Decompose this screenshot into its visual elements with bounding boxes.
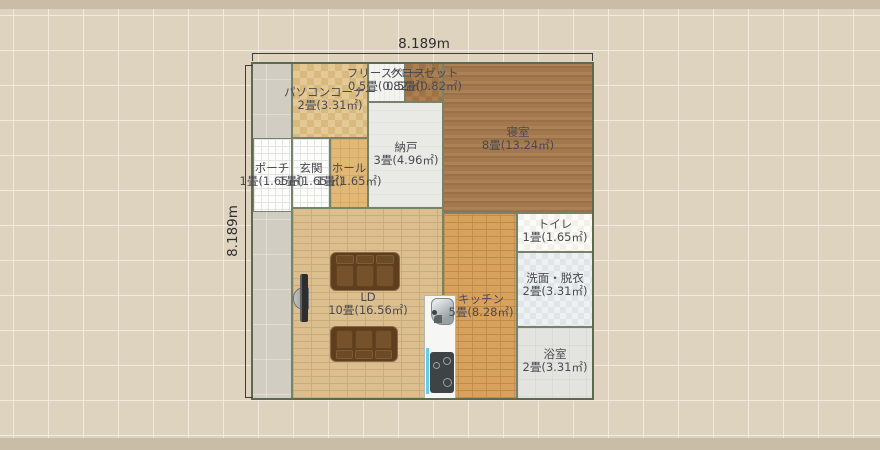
sofa-seats bbox=[336, 265, 394, 287]
stove-icon[interactable] bbox=[430, 352, 454, 393]
room-size: 8畳(13.24㎡) bbox=[482, 139, 554, 152]
sofa-icon[interactable] bbox=[330, 252, 400, 291]
room-label-storage: 納戸3畳(4.96㎡) bbox=[374, 141, 439, 167]
room-label-kitchen: キッチン5畳(8.28㎡) bbox=[449, 293, 514, 319]
dimension-label-top: 8.189m bbox=[398, 36, 450, 52]
room-side-strip[interactable] bbox=[252, 63, 292, 399]
sofa-back-cushion bbox=[376, 255, 394, 264]
floorplan-canvas[interactable]: パソコンコーナー2畳(3.31㎡) フリースペース0.5畳(0.82㎡) クロー… bbox=[0, 0, 880, 450]
room-label-bathroom: 浴室2畳(3.31㎡) bbox=[523, 348, 588, 374]
room-size: 5畳(8.28㎡) bbox=[449, 306, 514, 319]
sofa-seat-cushion bbox=[376, 265, 394, 287]
tv-icon[interactable] bbox=[293, 274, 309, 322]
dimension-tick bbox=[246, 397, 253, 398]
canvas-top-band bbox=[0, 0, 880, 9]
sofa-seat-cushion bbox=[336, 330, 353, 349]
burner-icon bbox=[443, 378, 452, 387]
room-size: 2畳(3.31㎡) bbox=[284, 99, 376, 112]
sofa-backrest bbox=[336, 350, 392, 359]
burner-icon bbox=[443, 357, 451, 365]
room-size: 1畳(1.65㎡) bbox=[317, 175, 382, 188]
room-label-washroom: 洗面・脱衣2畳(3.31㎡) bbox=[523, 272, 588, 298]
sofa-back-cushion bbox=[375, 350, 392, 359]
sofa-back-cushion bbox=[355, 350, 372, 359]
sink-stripe-icon bbox=[426, 348, 429, 394]
tv-screen bbox=[300, 274, 308, 322]
room-size: 3畳(4.96㎡) bbox=[374, 154, 439, 167]
room-label-closet: クローゼット0.5畳(0.82㎡) bbox=[386, 67, 462, 93]
dimension-line-top bbox=[252, 53, 593, 54]
dimension-label-left: 8.189m bbox=[218, 208, 248, 254]
dimension-tick bbox=[592, 54, 593, 61]
sofa-seat-cushion bbox=[375, 330, 392, 349]
room-label-toilet: トイレ1畳(1.65㎡) bbox=[523, 218, 588, 244]
room-size: 2畳(3.31㎡) bbox=[523, 361, 588, 374]
room-label-living-dining: LD10畳(16.56㎡) bbox=[328, 291, 408, 317]
sofa-seat-cushion bbox=[336, 265, 354, 287]
sofa-seat-cushion bbox=[356, 265, 374, 287]
sofa-seat-cushion bbox=[355, 330, 372, 349]
sofa-back-cushion bbox=[336, 350, 353, 359]
sofa-back-cushion bbox=[336, 255, 354, 264]
room-size: 0.5畳(0.82㎡) bbox=[386, 80, 462, 93]
room-size: 2畳(3.31㎡) bbox=[523, 285, 588, 298]
dimension-tick bbox=[252, 54, 253, 61]
dimension-tick bbox=[246, 65, 253, 66]
room-size: 1畳(1.65㎡) bbox=[523, 231, 588, 244]
sofa-backrest bbox=[336, 255, 394, 264]
room-label-hall: ホール1畳(1.65㎡) bbox=[317, 162, 382, 188]
canvas-bottom-band bbox=[0, 438, 880, 450]
burner-icon bbox=[433, 362, 440, 369]
fridge-door-notch bbox=[434, 315, 442, 323]
room-label-bedroom: 寝室8畳(13.24㎡) bbox=[482, 126, 554, 152]
sofa-back-cushion bbox=[356, 255, 374, 264]
sofa-seats bbox=[336, 330, 392, 349]
room-size: 10畳(16.56㎡) bbox=[328, 304, 408, 317]
sofa-icon[interactable] bbox=[330, 326, 398, 362]
